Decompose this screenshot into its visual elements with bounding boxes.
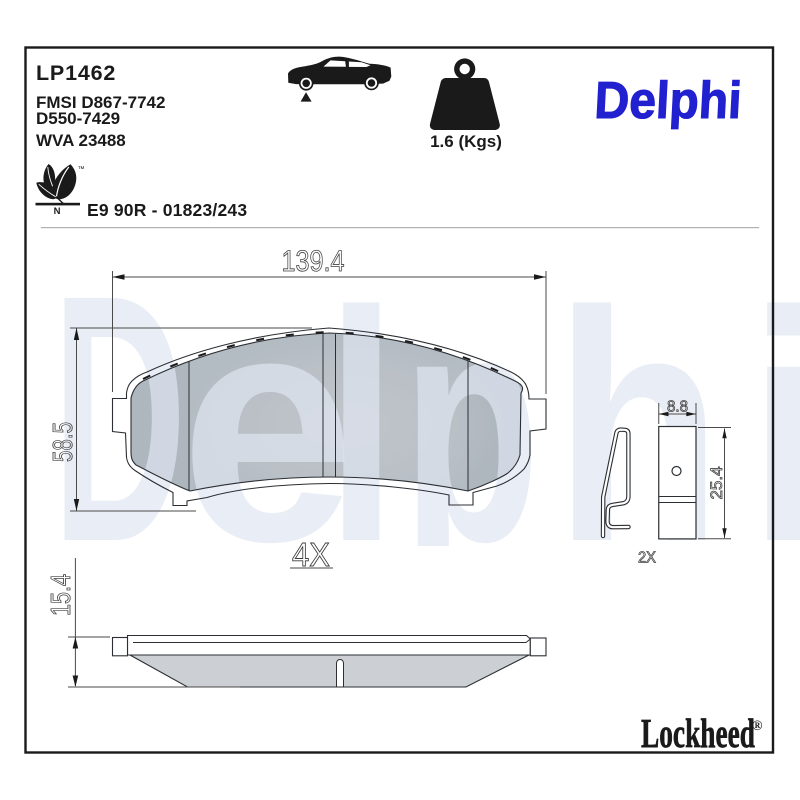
svg-text:58.5: 58.5: [47, 422, 78, 462]
svg-text:D550-7429: D550-7429: [36, 109, 120, 128]
svg-text:E9 90R - 01823/243: E9 90R - 01823/243: [87, 200, 247, 220]
svg-text:®: ®: [752, 719, 763, 734]
svg-text:Lockheed: Lockheed: [641, 710, 755, 756]
svg-text:8.8: 8.8: [667, 399, 688, 416]
svg-text:2X: 2X: [638, 550, 656, 567]
svg-text:p: p: [402, 243, 540, 612]
svg-text:139.4: 139.4: [282, 245, 345, 278]
svg-text:D: D: [52, 221, 187, 615]
svg-text:15.4: 15.4: [45, 574, 76, 616]
svg-text:4X: 4X: [292, 536, 330, 573]
svg-text:N: N: [54, 206, 61, 217]
svg-text:i: i: [750, 245, 800, 610]
svg-text:LP1462: LP1462: [36, 61, 116, 85]
svg-text:Delphi: Delphi: [593, 72, 743, 130]
svg-text:25.4: 25.4: [707, 467, 726, 500]
svg-text:1.6 (Kgs): 1.6 (Kgs): [430, 132, 502, 151]
svg-text:™: ™: [78, 166, 85, 173]
svg-text:WVA 23488: WVA 23488: [36, 131, 126, 150]
